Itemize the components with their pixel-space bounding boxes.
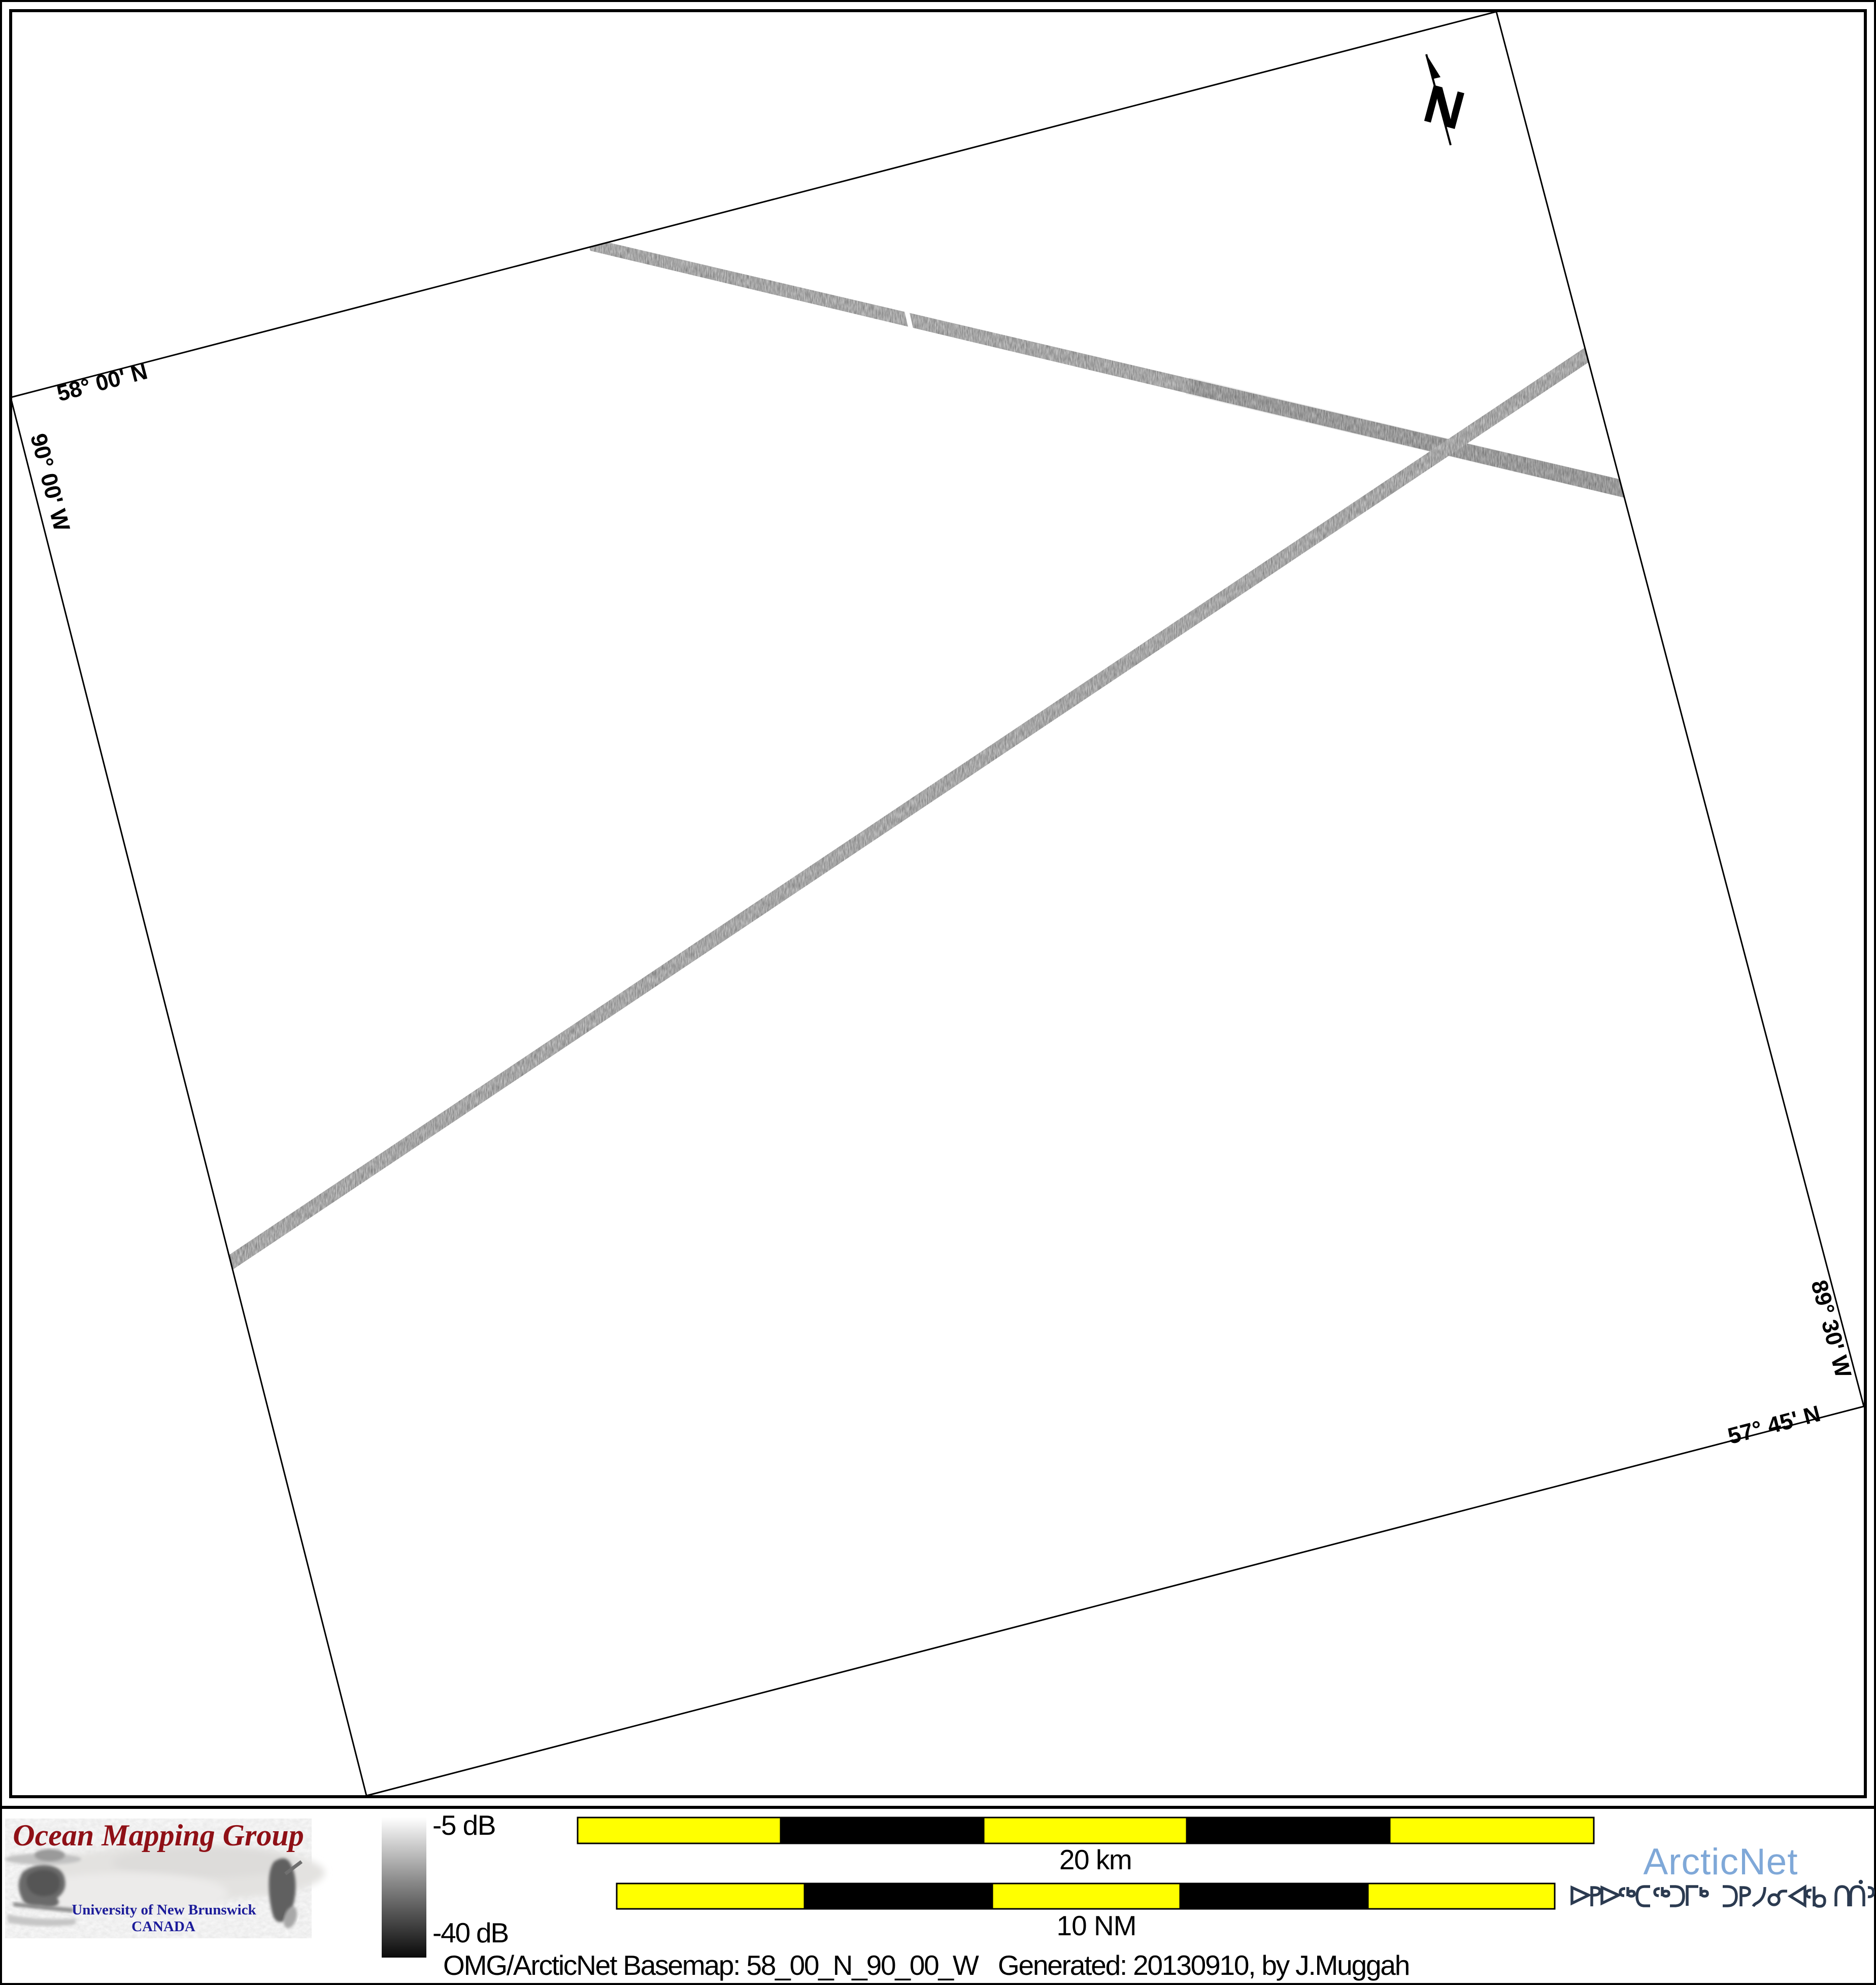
svg-text:Ocean Mapping Group: Ocean Mapping Group: [13, 1819, 304, 1852]
svg-text:-40 dB: -40 dB: [432, 1917, 508, 1948]
svg-text:OMG/ArcticNet Basemap: 58_00_N: OMG/ArcticNet Basemap: 58_00_N_90_00_W G…: [443, 1949, 1409, 1981]
svg-text:University of New Brunswick: University of New Brunswick: [72, 1902, 256, 1918]
svg-text:-5 dB: -5 dB: [432, 1809, 495, 1841]
svg-text:ArcticNet: ArcticNet: [1643, 1841, 1798, 1882]
svg-text:20 km: 20 km: [1059, 1844, 1131, 1875]
svg-text:10 NM: 10 NM: [1057, 1910, 1136, 1941]
svg-text:CANADA: CANADA: [131, 1919, 195, 1935]
